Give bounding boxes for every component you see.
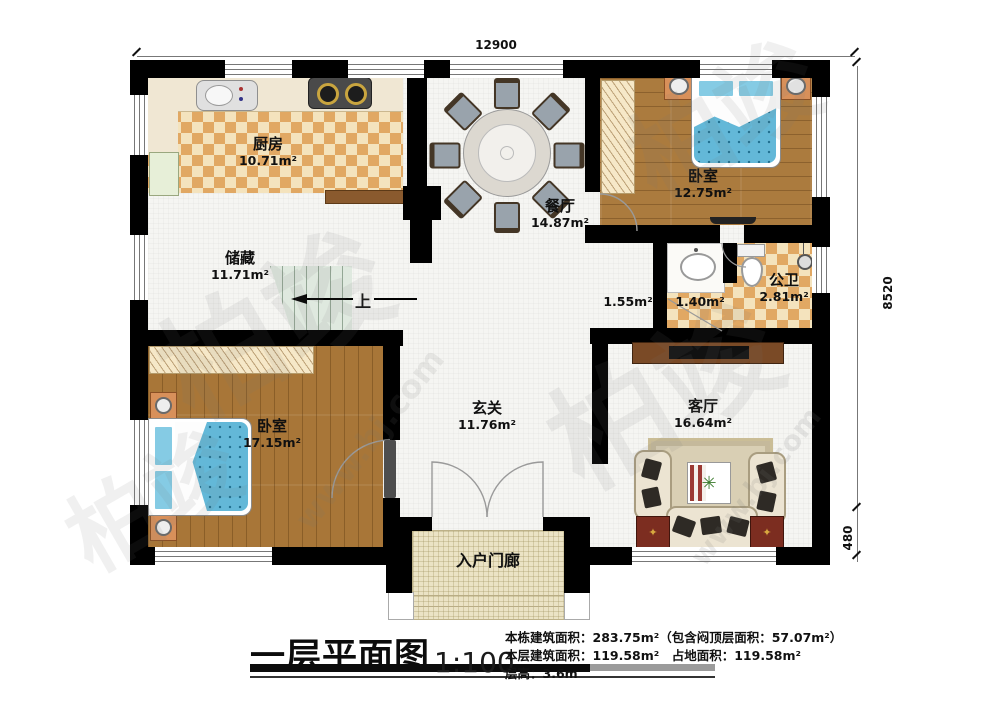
- room-label-storage: 储藏 11.71m²: [190, 250, 290, 282]
- info-line-2: 本层建筑面积：119.58m² 占地面积：119.58m²: [505, 645, 801, 664]
- room-label-kitchen: 厨房 10.71m²: [218, 136, 318, 168]
- dimension-right-lower: 480: [841, 518, 855, 558]
- room-label-living: 客厅 16.64m²: [653, 398, 753, 430]
- info-line-1: 本栋建筑面积：283.75m²（包含闷顶层面积：57.07m²）: [505, 627, 842, 646]
- room-label-bathroom: 公卫 2.81m²: [744, 272, 824, 304]
- dimension-right: 8520: [881, 263, 895, 323]
- scale-label: 1:100: [434, 646, 515, 679]
- door-swing-arcs: [0, 0, 1000, 706]
- room-label-foyer: 玄关 11.76m²: [437, 400, 537, 432]
- room-label-porch: 入户门廊: [412, 552, 564, 571]
- room-label-washroom: 1.40m²: [670, 295, 730, 310]
- stairs-up-label: 上: [355, 288, 371, 312]
- door-leaf: [384, 440, 396, 498]
- page-title: 一层平面图: [250, 628, 430, 679]
- room-label-dining: 餐厅 14.87m²: [510, 198, 610, 230]
- floor-plan: 上: [0, 0, 1000, 706]
- room-label-hall: 1.55m²: [598, 295, 658, 310]
- room-label-bedroom-bottom: 卧室 17.15m²: [222, 418, 322, 450]
- room-label-bedroom-top: 卧室 12.75m²: [653, 168, 753, 200]
- dimension-line: [857, 66, 858, 562]
- title-underline-extension: [590, 664, 715, 671]
- dimension-top: 12900: [137, 38, 855, 52]
- info-line-3: 层高：3.6m: [505, 663, 578, 682]
- dimension-line: [137, 56, 855, 57]
